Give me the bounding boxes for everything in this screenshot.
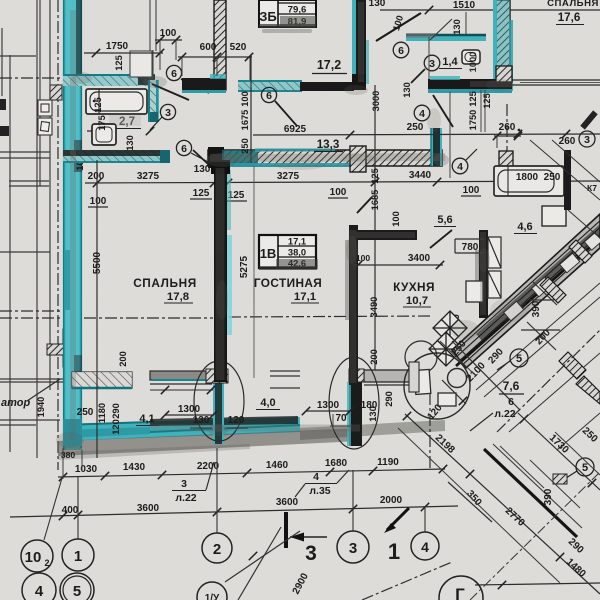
svg-text:3275: 3275 — [137, 171, 160, 182]
svg-text:КУХНЯ: КУХНЯ — [393, 280, 435, 294]
svg-text:3275: 3275 — [277, 171, 300, 182]
svg-text:10: 10 — [25, 549, 42, 566]
svg-text:5: 5 — [73, 583, 81, 600]
svg-text:250: 250 — [407, 122, 424, 133]
svg-text:3: 3 — [349, 540, 357, 557]
svg-text:ЗБ: ЗБ — [259, 9, 277, 24]
svg-text:6: 6 — [266, 90, 272, 102]
svg-text:290: 290 — [111, 403, 121, 419]
svg-text:200: 200 — [118, 351, 128, 367]
svg-text:4,0: 4,0 — [260, 397, 275, 409]
svg-text:1030: 1030 — [75, 464, 98, 475]
svg-text:100: 100 — [240, 91, 250, 107]
svg-text:1/У: 1/У — [205, 593, 220, 600]
svg-text:1460: 1460 — [266, 460, 289, 471]
svg-text:260: 260 — [559, 136, 576, 147]
svg-text:100: 100 — [330, 187, 347, 198]
svg-text:4: 4 — [35, 583, 44, 600]
svg-text:290: 290 — [384, 391, 394, 407]
svg-text:3440: 3440 — [409, 170, 432, 181]
svg-text:6: 6 — [398, 45, 404, 57]
svg-text:780: 780 — [462, 242, 479, 253]
svg-text:17,1: 17,1 — [294, 291, 317, 303]
svg-text:125: 125 — [370, 168, 380, 184]
svg-text:100: 100 — [90, 196, 107, 207]
svg-text:1510: 1510 — [453, 0, 476, 11]
svg-text:3: 3 — [584, 134, 590, 146]
svg-text:2000: 2000 — [380, 495, 403, 506]
svg-text:1,4: 1,4 — [442, 56, 458, 68]
svg-text:6: 6 — [181, 143, 187, 155]
svg-text:2200: 2200 — [197, 461, 220, 472]
svg-text:1180: 1180 — [97, 403, 107, 423]
svg-text:125: 125 — [114, 55, 124, 71]
svg-text:1000: 1000 — [468, 52, 478, 73]
svg-text:100: 100 — [463, 185, 480, 196]
svg-text:4: 4 — [457, 161, 463, 173]
svg-text:л.22: л.22 — [175, 492, 196, 504]
svg-text:4,6: 4,6 — [517, 221, 532, 233]
svg-text:1: 1 — [74, 548, 82, 565]
svg-text:4: 4 — [419, 108, 425, 120]
svg-text:125: 125 — [482, 93, 492, 109]
svg-text:1680: 1680 — [325, 458, 348, 469]
svg-text:3400: 3400 — [408, 253, 431, 264]
svg-text:17,1: 17,1 — [288, 236, 306, 247]
svg-text:520: 520 — [230, 42, 247, 53]
svg-text:1430: 1430 — [123, 462, 146, 473]
svg-text:120: 120 — [228, 415, 245, 426]
svg-text:130: 130 — [452, 19, 462, 35]
svg-text:3: 3 — [165, 107, 171, 119]
svg-text:СПАЛЬНЯ: СПАЛЬНЯ — [547, 0, 599, 9]
svg-text:3600: 3600 — [276, 497, 299, 508]
svg-text:5275: 5275 — [239, 255, 250, 278]
svg-text:3: 3 — [305, 542, 317, 565]
svg-text:130: 130 — [194, 164, 211, 175]
svg-text:5500: 5500 — [92, 251, 103, 274]
svg-text:390: 390 — [543, 488, 554, 505]
svg-text:ГОСТИНАЯ: ГОСТИНАЯ — [254, 276, 322, 290]
svg-text:6: 6 — [508, 396, 514, 408]
svg-text:3: 3 — [429, 58, 435, 70]
svg-text:1300: 1300 — [317, 400, 340, 411]
svg-text:260: 260 — [499, 122, 516, 133]
svg-text:3: 3 — [181, 478, 187, 490]
svg-text:130: 130 — [369, 0, 386, 9]
svg-text:250: 250 — [544, 172, 561, 183]
svg-text:л.35: л.35 — [309, 485, 330, 497]
svg-text:17,2: 17,2 — [317, 58, 341, 72]
svg-text:3000: 3000 — [371, 91, 381, 112]
svg-text:4: 4 — [421, 539, 429, 555]
svg-text:1675: 1675 — [240, 110, 250, 131]
svg-text:1750: 1750 — [106, 41, 129, 52]
svg-text:10,7: 10,7 — [406, 295, 428, 307]
svg-text:125: 125 — [193, 188, 210, 199]
svg-text:100: 100 — [391, 211, 401, 227]
svg-text:атор: атор — [1, 397, 30, 409]
svg-text:4,1: 4,1 — [139, 413, 154, 425]
svg-text:120: 120 — [111, 419, 121, 435]
svg-text:1940: 1940 — [36, 397, 46, 418]
svg-text:3600: 3600 — [137, 503, 160, 514]
svg-text:6925: 6925 — [284, 124, 307, 135]
svg-text:1750: 1750 — [468, 110, 478, 131]
svg-text:130: 130 — [368, 406, 378, 422]
svg-text:400: 400 — [62, 505, 79, 516]
svg-text:130: 130 — [193, 415, 210, 426]
svg-text:17,6: 17,6 — [558, 11, 581, 24]
svg-text:100: 100 — [356, 253, 371, 263]
svg-text:СПАЛЬНЯ: СПАЛЬНЯ — [133, 276, 197, 290]
svg-text:70: 70 — [335, 413, 347, 424]
svg-text:125: 125 — [468, 91, 478, 107]
svg-text:Г: Г — [455, 585, 465, 600]
svg-text:1800: 1800 — [516, 172, 539, 183]
svg-text:1685: 1685 — [370, 190, 380, 211]
svg-text:4: 4 — [313, 471, 319, 483]
svg-text:6: 6 — [171, 68, 177, 80]
svg-text:1В: 1В — [260, 246, 277, 261]
svg-text:л.22: л.22 — [494, 408, 515, 420]
svg-text:125: 125 — [93, 97, 103, 113]
svg-text:13,3: 13,3 — [317, 138, 340, 151]
svg-text:7,6: 7,6 — [503, 379, 520, 393]
svg-text:79,6: 79,6 — [288, 5, 307, 16]
svg-text:390: 390 — [531, 300, 542, 317]
svg-text:5: 5 — [582, 462, 588, 474]
svg-text:К7: К7 — [587, 183, 597, 193]
svg-text:600: 600 — [200, 42, 217, 53]
svg-text:175: 175 — [97, 115, 107, 131]
svg-text:5,6: 5,6 — [437, 214, 452, 226]
svg-text:17,8: 17,8 — [167, 291, 189, 303]
svg-text:130: 130 — [402, 82, 412, 98]
svg-text:38,0: 38,0 — [288, 247, 306, 258]
svg-text:250: 250 — [240, 138, 250, 154]
svg-text:2: 2 — [44, 558, 49, 568]
svg-text:3490: 3490 — [369, 297, 379, 318]
svg-text:200: 200 — [369, 349, 379, 365]
svg-text:130: 130 — [125, 135, 135, 151]
svg-text:1300: 1300 — [178, 404, 201, 415]
svg-text:250: 250 — [77, 407, 94, 418]
svg-text:1: 1 — [388, 539, 400, 564]
svg-text:2: 2 — [213, 541, 221, 558]
svg-text:1190: 1190 — [377, 457, 399, 468]
svg-text:200: 200 — [88, 171, 105, 182]
svg-text:5: 5 — [516, 353, 522, 365]
